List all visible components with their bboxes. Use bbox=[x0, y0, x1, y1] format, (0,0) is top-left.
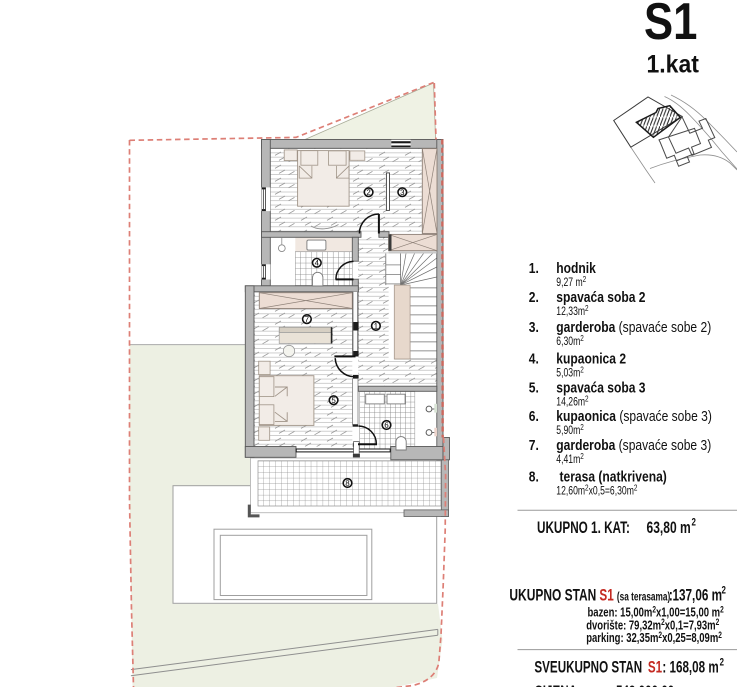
svg-text:2.: 2. bbox=[529, 289, 539, 305]
svg-text:9,27 m2: 9,27 m2 bbox=[556, 274, 586, 289]
svg-text:137,06 m: 137,06 m bbox=[673, 587, 723, 605]
svg-text:549.000,00: 549.000,00 bbox=[616, 683, 674, 687]
svg-text:6.: 6. bbox=[529, 408, 539, 424]
svg-text:2: 2 bbox=[692, 516, 696, 529]
svg-text:: 168,08 m: : 168,08 m bbox=[662, 659, 718, 677]
svg-text:5.: 5. bbox=[529, 379, 539, 395]
svg-text:12,33m2: 12,33m2 bbox=[556, 303, 588, 318]
svg-text:63,80 m: 63,80 m bbox=[647, 519, 691, 537]
svg-text:5,03m2: 5,03m2 bbox=[556, 364, 583, 379]
svg-text:hodnik: hodnik bbox=[556, 260, 596, 276]
svg-text:4,41m2: 4,41m2 bbox=[556, 451, 583, 466]
svg-text:2: 2 bbox=[722, 584, 726, 597]
svg-text:S1: S1 bbox=[599, 587, 613, 605]
svg-text:6,30m2: 6,30m2 bbox=[556, 333, 583, 348]
svg-text:dvorište: 79,32m2x0,1=7,93m2: dvorište: 79,32m2x0,1=7,93m2 bbox=[586, 617, 720, 633]
svg-text:8.: 8. bbox=[529, 469, 539, 485]
svg-text:(sa terasama): (sa terasama) bbox=[617, 591, 670, 604]
svg-text:spavaća soba 2: spavaća soba 2 bbox=[556, 289, 645, 305]
svg-text:1.: 1. bbox=[529, 260, 539, 276]
svg-text:7.: 7. bbox=[529, 437, 539, 453]
svg-text:2: 2 bbox=[720, 656, 724, 669]
svg-text:3.: 3. bbox=[529, 319, 539, 335]
svg-text:S1: S1 bbox=[644, 0, 697, 51]
svg-text:14,26m2: 14,26m2 bbox=[556, 393, 588, 408]
svg-text:SVEUKUPNO STAN: SVEUKUPNO STAN bbox=[534, 659, 642, 677]
svg-text:terasa (natkrivena): terasa (natkrivena) bbox=[560, 469, 667, 485]
svg-text:UKUPNO STAN: UKUPNO STAN bbox=[509, 587, 596, 605]
svg-text:5,90m2: 5,90m2 bbox=[556, 422, 583, 437]
svg-text:S1: S1 bbox=[648, 659, 662, 677]
svg-text:12,60m2x0,5=6,30m2: 12,60m2x0,5=6,30m2 bbox=[556, 483, 637, 498]
svg-text:spavaća soba 3: spavaća soba 3 bbox=[556, 379, 645, 395]
svg-text:CIJENA: CIJENA bbox=[534, 683, 577, 687]
svg-text:bazen: 15,00m2x1,00=15,00 m2: bazen: 15,00m2x1,00=15,00 m2 bbox=[588, 604, 725, 620]
svg-text:1.kat: 1.kat bbox=[647, 51, 699, 79]
svg-text:parking: 32,35m2x0,25=8,09m2: parking: 32,35m2x0,25=8,09m2 bbox=[586, 630, 722, 646]
svg-text:UKUPNO 1. KAT:: UKUPNO 1. KAT: bbox=[537, 519, 630, 537]
svg-text:4.: 4. bbox=[529, 350, 539, 366]
svg-text:kupaonica 2: kupaonica 2 bbox=[556, 350, 626, 366]
